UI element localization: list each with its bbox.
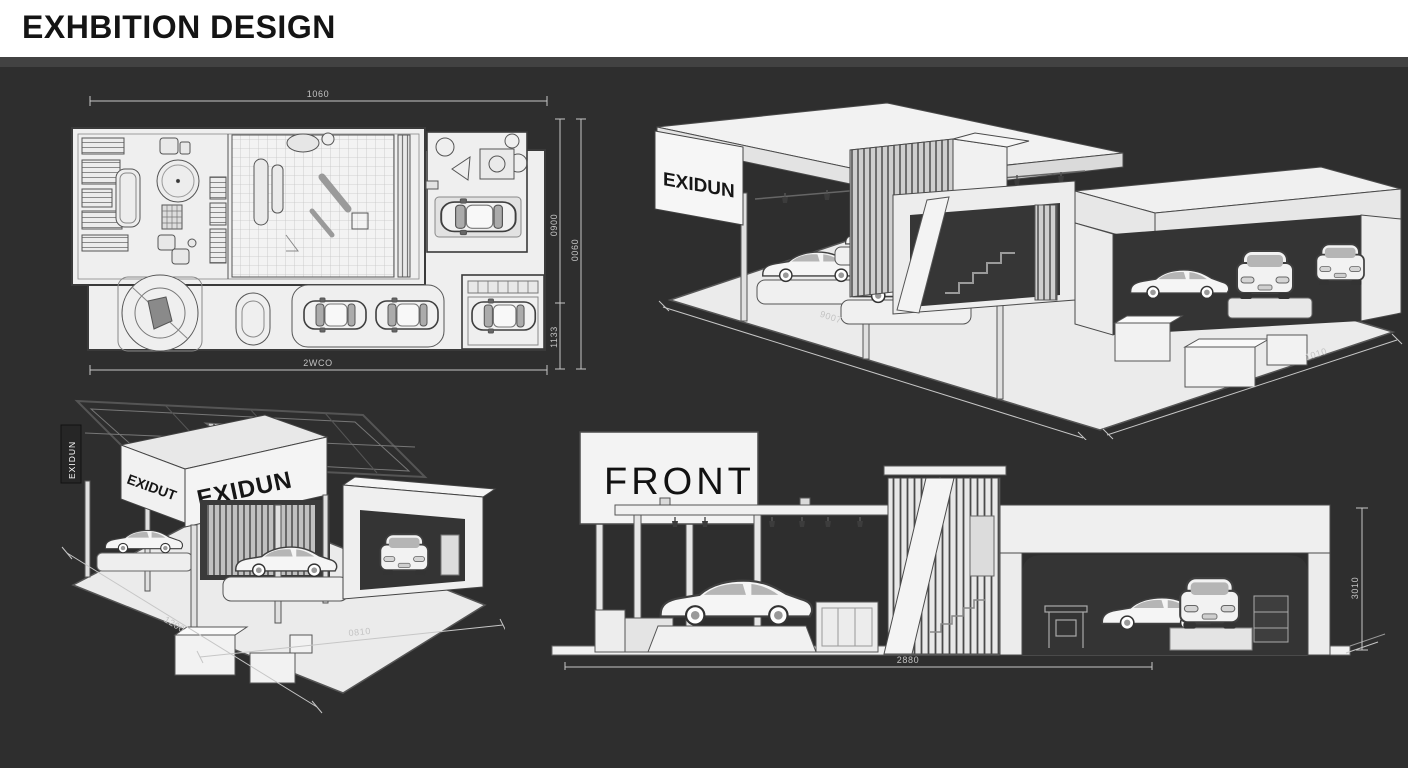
- floor-plan-dim-bottom: 2WCO: [90, 358, 547, 375]
- car-front-view: [1316, 244, 1364, 285]
- front-dim-right: 3010: [1346, 508, 1378, 653]
- floor-plan-dim-right: 0900 1133 0060: [549, 119, 586, 369]
- car-top-view: [441, 199, 515, 235]
- right-portal: [343, 477, 495, 599]
- dim-label: 2880: [897, 655, 919, 665]
- floor-plan-dim-top: 1060: [90, 89, 547, 106]
- page-title: EXHBITION DESIGN: [22, 9, 336, 46]
- plan-bottom-strip: [118, 275, 544, 351]
- dim-label: 2WCO: [303, 358, 332, 368]
- dim-label: 3010: [1350, 577, 1360, 599]
- track-light: [825, 517, 831, 527]
- slat-tower: [884, 466, 1006, 654]
- brand-sign-text-vertical: EXIDUN: [67, 441, 77, 479]
- car-top-view: [304, 298, 366, 332]
- dim-label: 1060: [307, 89, 329, 99]
- track-light: [782, 193, 788, 203]
- floor-plan-view: 1060 2WCO 0900 1133 0060: [60, 85, 600, 385]
- plan-topright-room: [426, 132, 527, 252]
- car-front-view: [1180, 578, 1239, 628]
- track-light: [824, 190, 830, 200]
- right-portal: [1000, 505, 1330, 655]
- booth-sign-panel: EXIDUN: [655, 131, 743, 225]
- dim-label: 0060: [570, 239, 580, 261]
- floor-plan-drawing: [72, 128, 545, 351]
- view-label: FRONT: [604, 461, 755, 503]
- track-light: [857, 517, 863, 527]
- presentation-board: EXHBITION DESIGN 1060 2WCO 0900 1133 006…: [0, 0, 1408, 768]
- car-side-view: [661, 581, 812, 625]
- front-dim-bottom: 2880: [565, 655, 1152, 670]
- iso-perspective-right-view: EXIDUN: [645, 95, 1405, 440]
- front-elevation-view: FRONT: [540, 420, 1400, 670]
- car-front-view: [380, 534, 428, 575]
- header-divider: [0, 57, 1408, 67]
- vertical-sign-panel: EXIDUN: [61, 425, 81, 483]
- dim-label: 1133: [549, 326, 559, 348]
- plan-hall: [232, 133, 410, 277]
- track-light: [799, 517, 805, 527]
- title-bar: EXHBITION DESIGN: [0, 0, 1408, 57]
- right-portal: [1075, 167, 1401, 387]
- car-top-view: [376, 298, 438, 332]
- iso-perspective-left-view: EXIDUN EXIDUT EXIDUN: [25, 385, 505, 730]
- dim-label: 0900: [549, 214, 559, 236]
- car-front-view: [1237, 251, 1293, 299]
- mid-structure: [893, 181, 1075, 314]
- car-top-view: [472, 299, 535, 333]
- track-light: [769, 517, 775, 527]
